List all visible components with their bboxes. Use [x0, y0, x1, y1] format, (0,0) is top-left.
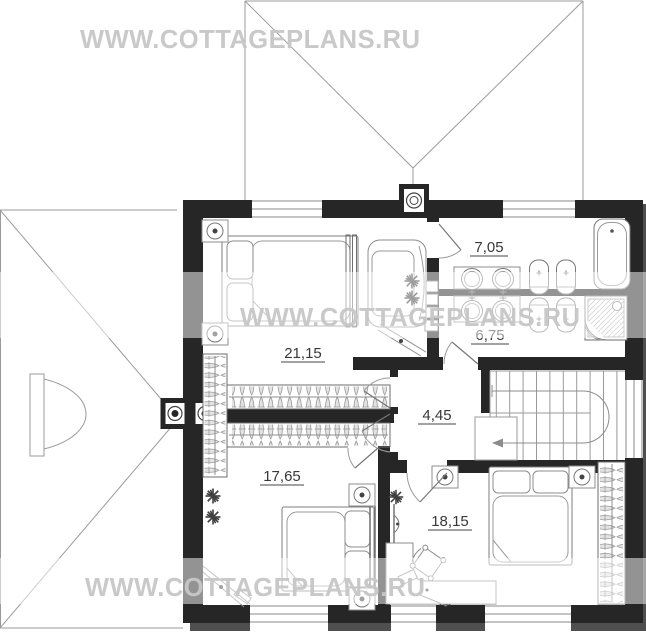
plant-icon [206, 510, 221, 525]
window-bottom-left [250, 606, 328, 622]
window-bottom-middle [391, 606, 436, 622]
plant-icon [389, 490, 403, 504]
nightstand-lamp-icon [569, 466, 595, 488]
room-label-bedroom-left: 17,65 [263, 468, 301, 485]
room-label-hall: 4,45 [422, 407, 451, 424]
window-top-left [252, 201, 322, 217]
nightstand-lamp-icon [349, 484, 375, 506]
chimney-top-icon [399, 184, 429, 218]
floor-plan-canvas: 7,05 6,75 21,15 4,45 17,65 18,15 WWW.COT… [0, 0, 646, 632]
door-bedroom-left [348, 448, 378, 468]
room-label-bathroom-upper: 7,05 [474, 239, 503, 256]
roof-window-icon [30, 374, 86, 456]
watermark-text-top: WWW.COTTAGEPLANS.RU [80, 26, 421, 54]
room-label-bedroom-right: 18,15 [431, 513, 469, 530]
room-label-bedroom-master: 21,15 [284, 345, 322, 362]
nightstand-lamp-icon [202, 220, 228, 242]
door-bathroom-upper [439, 224, 461, 258]
dressing-mirror-icon [394, 504, 399, 544]
watermark-text-bottom: WWW.COTTAGEPLANS.RU [85, 574, 426, 602]
wardrobe-left [203, 354, 227, 477]
double-bed-icon [489, 467, 572, 565]
watermark-text-middle: WWW.COTTAGEPLANS.RU [240, 304, 581, 332]
door-bathroom-lower [444, 342, 478, 364]
chimney-left-outer-icon [161, 398, 190, 429]
wardrobe-closet-lower [227, 423, 390, 447]
window-bottom-right [485, 606, 571, 622]
window-right [626, 380, 642, 458]
staircase [475, 371, 625, 460]
floor-plan-page: 7,05 6,75 21,15 4,45 17,65 18,15 WWW.COT… [0, 0, 646, 632]
plant-icon [206, 489, 221, 504]
window-top-right [503, 201, 575, 217]
